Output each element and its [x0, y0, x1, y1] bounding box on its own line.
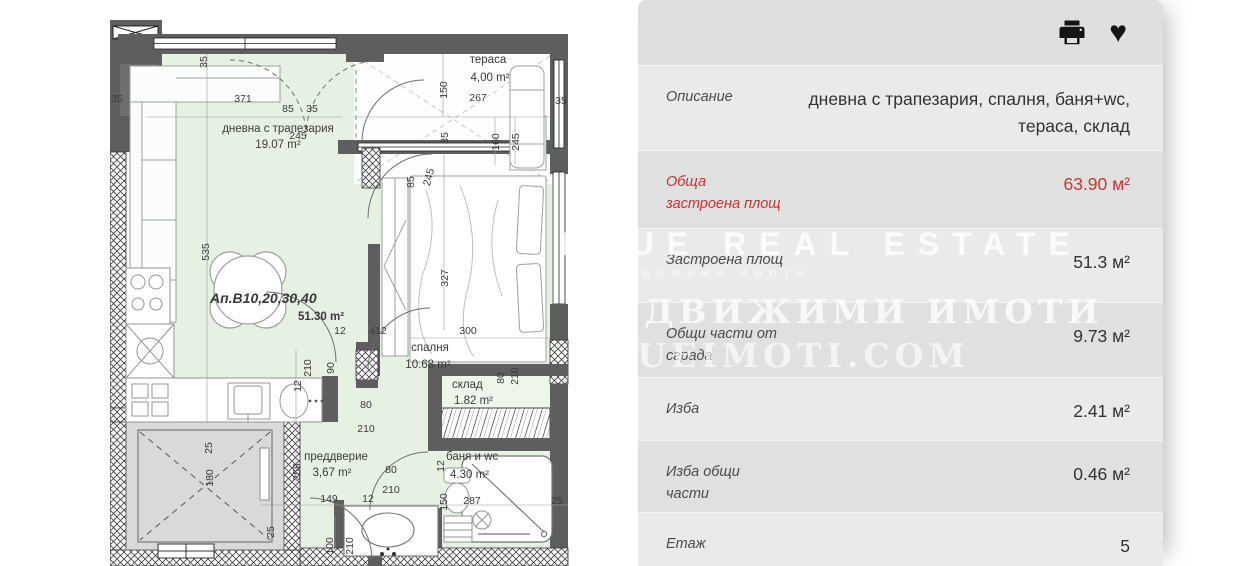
wall	[428, 438, 568, 451]
dim-label: 85	[405, 176, 417, 188]
row-label: Описание	[666, 86, 784, 108]
room-label-bedroom: спалня	[411, 342, 449, 354]
wall	[428, 364, 442, 440]
row-value: 63.90 м²	[784, 171, 1130, 198]
dim-label: 210	[509, 367, 521, 385]
dim-label: 160	[490, 133, 502, 151]
wall	[550, 384, 568, 548]
vanity-sink	[344, 506, 438, 556]
dim-label: 149	[320, 493, 338, 505]
room-label-living: дневна с трапезария	[222, 123, 334, 135]
wall-hatch	[356, 350, 378, 380]
dim-label: 210	[357, 423, 375, 435]
dim-label: 35	[555, 95, 567, 107]
wall	[346, 34, 384, 62]
row-value: 51.3 м²	[784, 249, 1130, 276]
dim-label: 12	[334, 325, 346, 337]
dim-label: 300	[459, 325, 477, 337]
dim-label: 210	[382, 484, 400, 496]
room-area-hall: 3,67 m²	[313, 467, 352, 479]
dim-label: 25	[551, 495, 563, 507]
row-value: 2.41 м²	[784, 398, 1130, 425]
row-floor: Етаж 5	[638, 512, 1163, 566]
dim-label: 35	[306, 103, 318, 115]
wall	[356, 380, 378, 388]
floorplan: 371 35 85 35 245 150 267 160 245 35 35 8…	[110, 20, 580, 566]
row-label: Изба общи части	[666, 461, 784, 506]
dim-label: 150	[438, 81, 450, 99]
dim-label: 80	[385, 464, 397, 476]
wall-hatch	[550, 340, 568, 384]
wall-hatch	[110, 152, 126, 408]
dim-label: 150	[438, 493, 450, 511]
property-info-panel: ♥ Описание дневна с трапезария, спалня, …	[638, 0, 1163, 566]
room-label-storage: склад	[452, 379, 483, 391]
row-value: дневна с трапезария, спалня, баня+wc, те…	[784, 86, 1130, 140]
dim-label: 245	[510, 133, 522, 151]
panel-header: ♥	[638, 0, 1163, 65]
dim-label: 100	[324, 537, 336, 555]
heart-icon: ♥	[1109, 18, 1127, 48]
row-label: Етаж	[666, 533, 784, 555]
row-label: Обща застроена площ	[666, 171, 784, 216]
room-label-terrace: тераса	[470, 54, 507, 66]
print-button[interactable]	[1057, 18, 1087, 48]
dim-label: 267	[469, 92, 487, 104]
wall	[322, 376, 338, 422]
print-icon	[1057, 18, 1087, 48]
dim-label: 180	[204, 469, 216, 487]
room-label-bath: баня и wc	[446, 451, 498, 463]
dim-label: 287	[463, 495, 481, 507]
wall	[356, 342, 378, 350]
room-area-terrace: 4,00 m²	[471, 72, 510, 84]
row-common-parts: Общи части от сграда 9.73 м²	[638, 302, 1163, 377]
dim-label: 412	[369, 325, 387, 337]
dim-label: 90	[325, 362, 337, 374]
room-area-bedroom: 10.68 m²	[405, 359, 451, 371]
dim-label: 80	[495, 372, 507, 384]
dim-label: 371	[234, 93, 252, 105]
row-value: 0.46 м²	[784, 461, 1130, 488]
wall-hatch	[362, 148, 380, 188]
room-area-storage: 1.82 m²	[454, 395, 493, 407]
dim-label: 327	[439, 269, 451, 287]
row-label: Застроена площ	[666, 249, 784, 271]
elevator-shaft-wall	[110, 408, 126, 566]
favorite-button[interactable]: ♥	[1109, 18, 1127, 48]
row-total-built-area: Обща застроена площ 63.90 м²	[638, 150, 1163, 228]
row-value: 9.73 м²	[784, 323, 1130, 350]
dim-label: 25	[265, 526, 277, 538]
dim-label: 12	[362, 493, 374, 505]
dim-label: 25	[203, 442, 215, 454]
room-area-bath: 4.30 m²	[450, 469, 489, 481]
dim-label: 35	[198, 56, 210, 68]
wall	[550, 304, 568, 340]
dim-label: 80	[360, 399, 372, 411]
row-label: Изба	[666, 398, 784, 420]
row-label: Общи части от сграда	[666, 323, 784, 368]
dim-label: 12	[292, 380, 304, 392]
row-description: Описание дневна с трапезария, спалня, ба…	[638, 65, 1163, 150]
room-area-living: 19.07 m²	[255, 139, 301, 151]
dim-label: 210	[302, 359, 314, 377]
dim-label: 535	[200, 243, 212, 261]
apartment-label: Ап.В10,20,30,40	[209, 290, 317, 306]
row-value: 5	[784, 533, 1130, 560]
row-built-area: Застроена площ 51.3 м²	[638, 228, 1163, 302]
dim-label: 85	[282, 103, 294, 115]
apartment-area: 51.30 m²	[298, 311, 344, 323]
elevator-shaft-wall	[284, 408, 300, 566]
wall	[550, 152, 568, 174]
dim-label: 35	[439, 132, 451, 144]
row-cellar: Изба 2.41 м²	[638, 377, 1163, 440]
room-label-hall: преддверие	[304, 451, 368, 463]
floorplan-drawing: 371 35 85 35 245 150 267 160 245 35 35 8…	[110, 20, 580, 566]
row-cellar-common: Изба общи части 0.46 м²	[638, 440, 1163, 512]
dim-label: 35	[111, 93, 123, 105]
dim-label: 258	[291, 463, 303, 481]
dim-label: 210	[344, 537, 356, 555]
